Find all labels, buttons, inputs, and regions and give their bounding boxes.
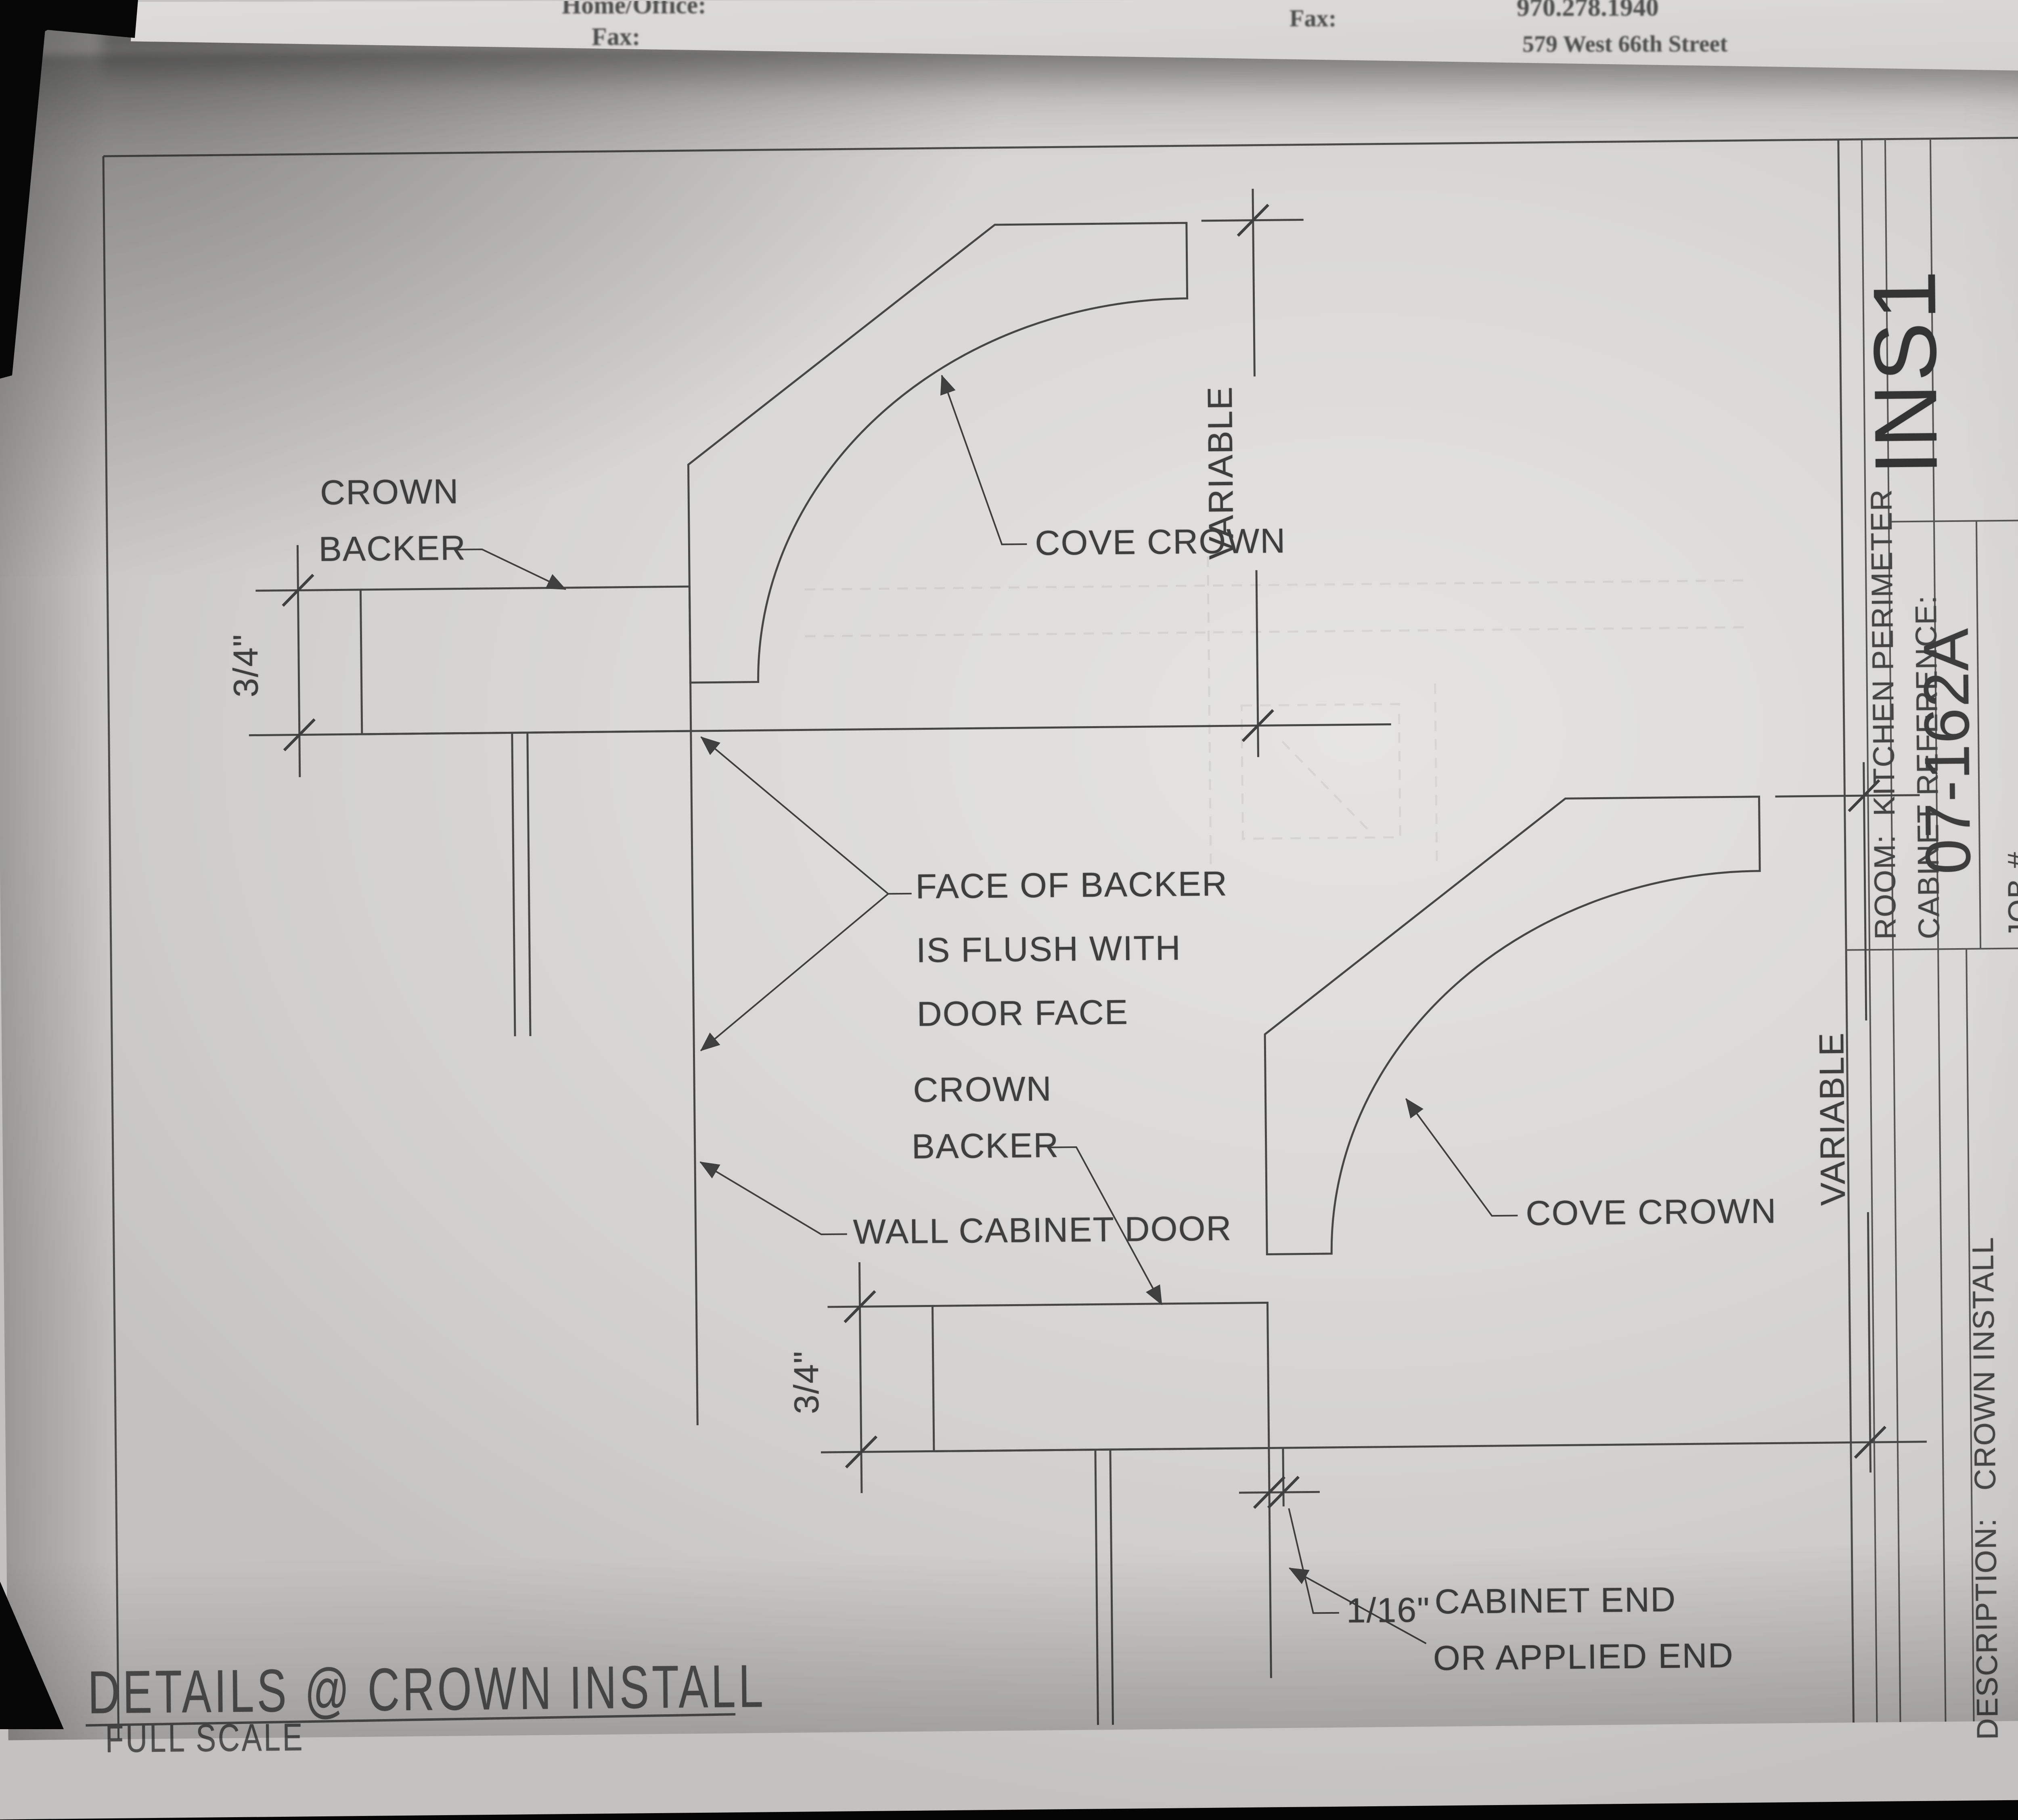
photo-scene: CROWN BACKER COVE CROWN VARIABLE 3/4" FA… xyxy=(0,0,2018,1729)
background-cutouts xyxy=(0,0,2018,1729)
black-edge-left xyxy=(0,29,45,379)
black-corner-bottom-left xyxy=(0,1581,64,1729)
